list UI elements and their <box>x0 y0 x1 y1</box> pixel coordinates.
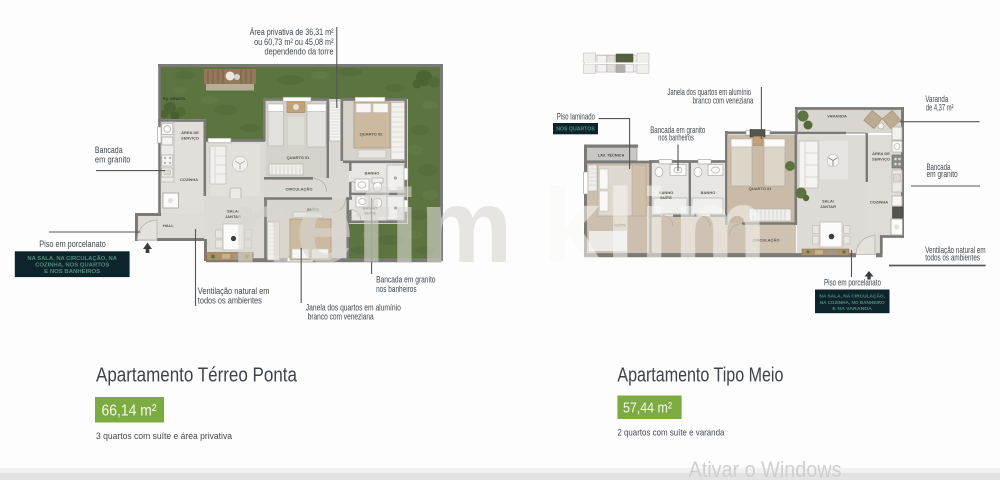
svg-text:PQ. INFANTIL: PQ. INFANTIL <box>163 97 187 101</box>
svg-text:Piso em porcelanato: Piso em porcelanato <box>824 278 881 289</box>
svg-text:COZINHA: COZINHA <box>870 200 888 205</box>
svg-text:QUARTO 01: QUARTO 01 <box>287 155 311 160</box>
svg-text:dependendo da torre: dependendo da torre <box>265 47 334 58</box>
svg-text:Apartamento Térreo Ponta: Apartamento Térreo Ponta <box>96 364 297 387</box>
svg-text:3 quartos com suíte e área pri: 3 quartos com suíte e área privativa <box>96 431 233 441</box>
svg-text:LAV. TÉCNICA: LAV. TÉCNICA <box>598 153 625 158</box>
svg-text:Ativar o Windows: Ativar o Windows <box>689 457 842 480</box>
svg-text:E NOS BANHEIROS: E NOS BANHEIROS <box>44 269 101 275</box>
svg-text:nos banheiros: nos banheiros <box>658 133 694 144</box>
svg-text:todos os ambientes: todos os ambientes <box>925 252 980 263</box>
svg-text:branco com veneziana: branco com veneziana <box>693 96 754 107</box>
svg-text:QUARTO 02: QUARTO 02 <box>360 132 384 137</box>
svg-text:Apartamento Tipo Meio: Apartamento Tipo Meio <box>617 364 783 387</box>
svg-text:COZINHA: COZINHA <box>180 177 198 182</box>
svg-text:JANTAR: JANTAR <box>820 204 836 209</box>
svg-text:NOS QUARTOS: NOS QUARTOS <box>556 127 595 133</box>
svg-text:66,14 m²: 66,14 m² <box>102 403 157 420</box>
svg-text:E NA VARANDA: E NA VARANDA <box>832 306 872 312</box>
svg-text:NA COZINHA, NO BANHEIRO: NA COZINHA, NO BANHEIRO <box>820 300 885 306</box>
svg-text:NA SALA, NA CIRCULAÇÃO, NA: NA SALA, NA CIRCULAÇÃO, NA <box>27 255 117 262</box>
svg-text:klim: klim <box>543 168 771 284</box>
svg-text:ÁREA DE: ÁREA DE <box>181 130 199 135</box>
svg-text:todos os ambientes: todos os ambientes <box>198 295 262 306</box>
svg-text:Piso em porcelanato: Piso em porcelanato <box>39 239 106 250</box>
svg-text:ÁREA DE: ÁREA DE <box>872 151 890 156</box>
svg-text:branco com veneziana: branco com veneziana <box>308 311 374 322</box>
svg-text:NA SALA, NA CIRCULAÇÃO,: NA SALA, NA CIRCULAÇÃO, <box>819 293 885 300</box>
svg-text:COZINHA, NOS QUARTOS: COZINHA, NOS QUARTOS <box>35 263 110 269</box>
svg-text:em granito: em granito <box>927 169 958 180</box>
svg-text:SALA/: SALA/ <box>822 199 835 204</box>
svg-text:SERVIÇO: SERVIÇO <box>181 136 199 141</box>
svg-text:2 quartos com suíte e varanda: 2 quartos com suíte e varanda <box>617 428 725 438</box>
svg-text:em granito: em granito <box>95 154 131 165</box>
svg-text:HALL: HALL <box>163 223 174 228</box>
svg-text:de 4,37 m²: de 4,37 m² <box>926 102 954 113</box>
svg-text:Piso laminado: Piso laminado <box>557 112 595 123</box>
svg-text:57,44 m²: 57,44 m² <box>623 400 672 417</box>
svg-text:nos banheiros: nos banheiros <box>376 284 417 295</box>
svg-text:VARANDA: VARANDA <box>827 114 847 119</box>
svg-text:SERVIÇO: SERVIÇO <box>872 157 890 162</box>
svg-text:nefim: nefim <box>231 169 513 285</box>
